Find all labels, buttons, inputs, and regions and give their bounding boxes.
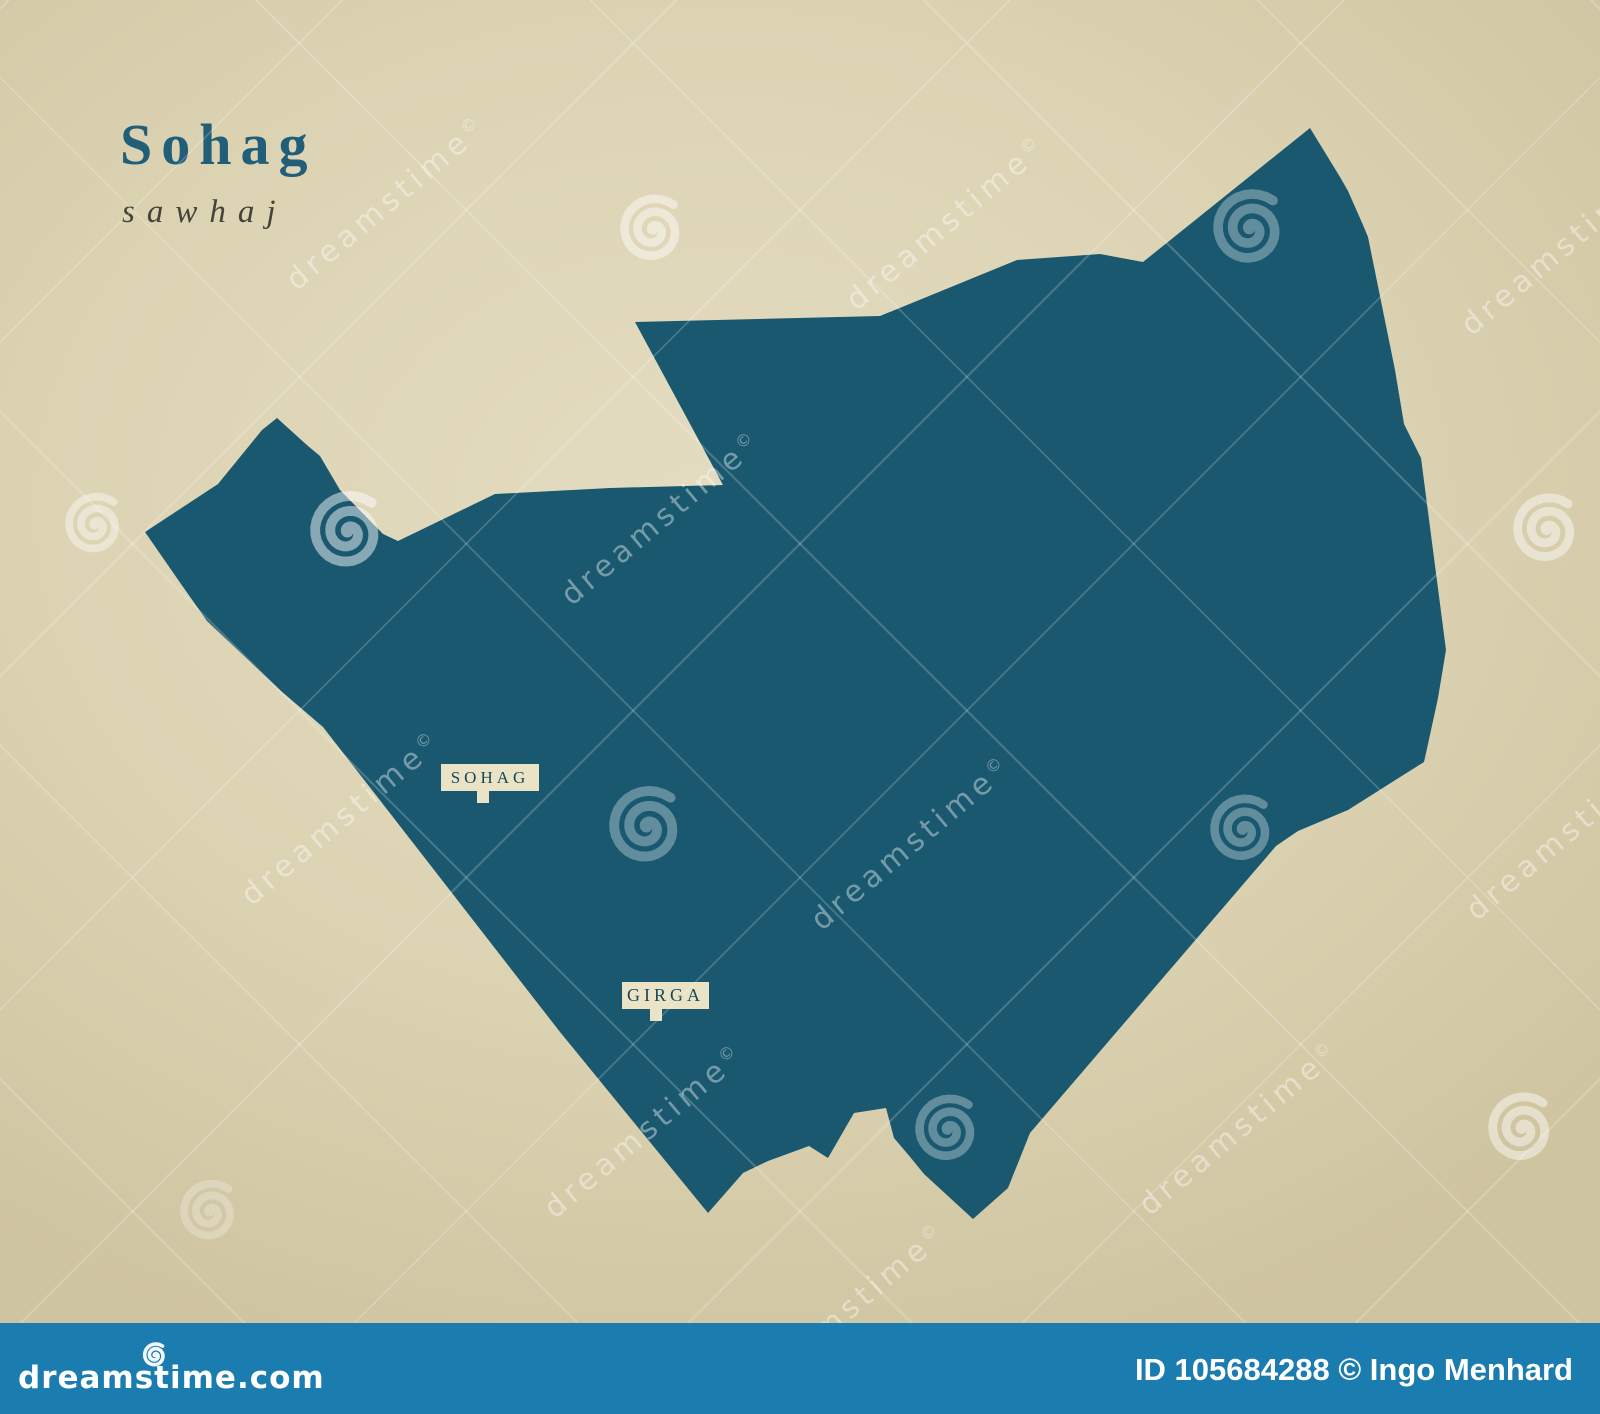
city-marker-girga bbox=[650, 1009, 662, 1021]
image-credit: ID 105684288 © Ingo Menhard bbox=[1135, 1352, 1573, 1388]
map-title: Sohag bbox=[120, 116, 317, 174]
city-label-girga: GIRGA bbox=[622, 982, 709, 1009]
sohag-region-shape bbox=[145, 128, 1446, 1219]
city-label-sohag-text: SOHAG bbox=[451, 768, 530, 788]
city-label-sohag: SOHAG bbox=[441, 764, 539, 791]
brand-spiral-icon bbox=[136, 1337, 174, 1380]
map-subtitle: sawhaj bbox=[122, 196, 288, 229]
city-marker-sohag bbox=[477, 791, 489, 803]
stock-image-page: Sohag sawhaj SOHAG GIRGA dreamstime©drea… bbox=[0, 0, 1600, 1414]
city-label-girga-text: GIRGA bbox=[627, 985, 704, 1006]
